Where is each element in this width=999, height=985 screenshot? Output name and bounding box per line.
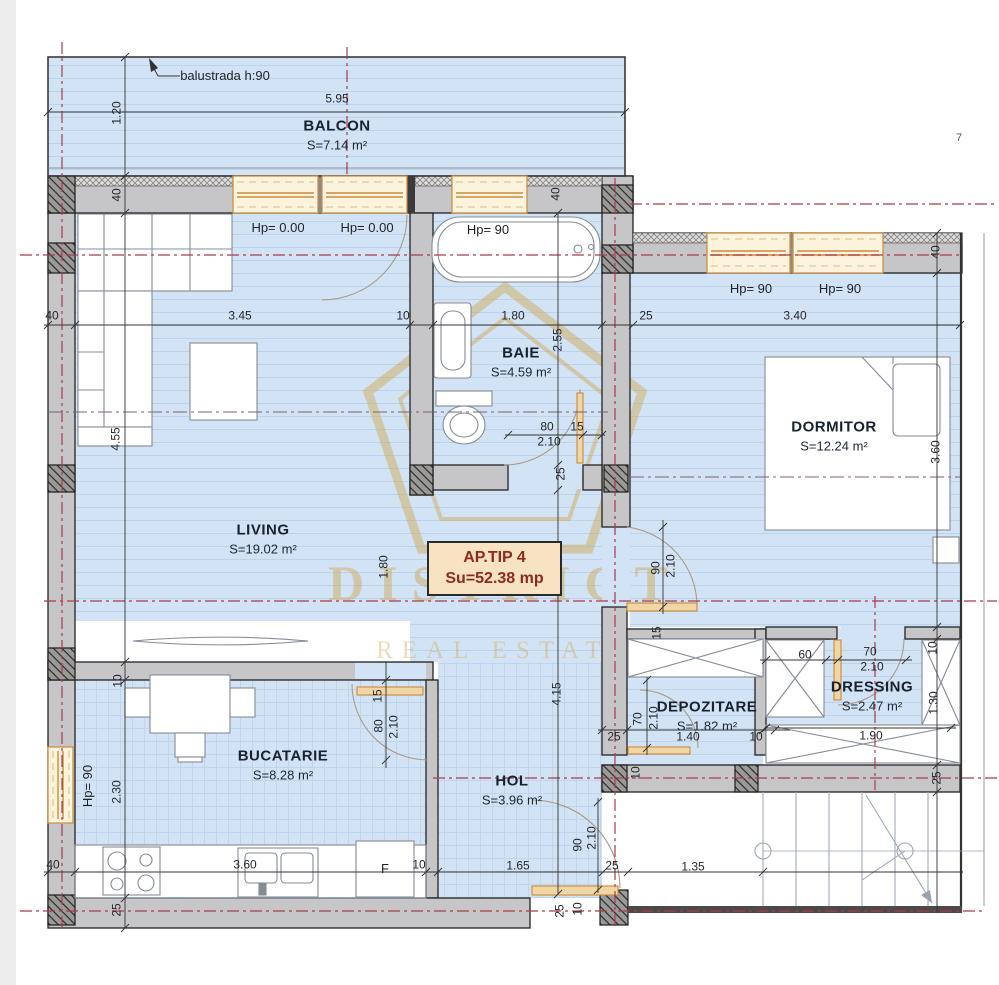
dimension-label: 2.55 [552, 328, 565, 351]
room-area: S=12.24 m² [791, 439, 876, 454]
dimension-label: 2.10 [537, 436, 560, 449]
dimension-label: 2.10 [665, 554, 678, 577]
annotation-label: Hp= 90 [819, 282, 861, 296]
annotation-label: Hp= 90 [81, 765, 95, 807]
room-area: S=19.02 m² [229, 542, 297, 557]
room-area: S=3.96 m² [482, 793, 542, 808]
dimension-label: 25 [607, 731, 620, 744]
annotation-label: Hp= 90 [467, 223, 509, 237]
floor-plan: DISTRICT REAL ESTATE [0, 0, 999, 985]
annotation-label: Hp= 0.00 [340, 221, 393, 235]
dimension-label: 1.90 [859, 730, 882, 743]
room-label-hol: HOLS=3.96 m² [482, 773, 542, 808]
room-label-bucatarie: BUCATARIES=8.28 m² [238, 748, 329, 783]
dimension-label: 1.80 [378, 555, 391, 578]
dimension-label: 25 [111, 903, 124, 916]
dimension-label: 40 [930, 245, 943, 258]
dimension-label: 2.10 [586, 826, 599, 849]
room-area: S=7.14 m² [303, 138, 370, 153]
dimension-label: 10 [572, 902, 585, 915]
dimension-label: 40 [550, 187, 563, 200]
dimension-label: 10 [112, 674, 125, 687]
dimension-label: 80 [373, 719, 386, 732]
dimension-label: 25 [639, 310, 652, 323]
room-label-dormitor: DORMITORS=12.24 m² [791, 419, 876, 454]
room-name: BAIE [491, 345, 551, 362]
apartment-info-box: AP.TIP 4 Su=52.38 mp [427, 541, 562, 596]
room-label-dressing: DRESSINGS=2.47 m² [831, 679, 913, 714]
dimension-label: 40 [111, 188, 124, 201]
dimension-label: 10 [412, 859, 425, 872]
dimension-label: 10 [927, 641, 940, 654]
dimension-label: 80 [540, 421, 553, 434]
dimension-label: 4.15 [551, 682, 564, 705]
room-area: S=8.28 m² [238, 768, 329, 783]
room-label-baie: BAIES=4.59 m² [491, 345, 551, 380]
apartment-type: AP.TIP 4 [463, 548, 526, 569]
dimension-label: 15 [651, 626, 664, 639]
apartment-area: Su=52.38 mp [445, 569, 543, 590]
room-area: S=1.82 m² [657, 719, 758, 734]
dimension-label: 2.10 [860, 661, 883, 674]
dimension-label: 70 [863, 646, 876, 659]
dimension-label: 10 [630, 766, 643, 779]
room-name: HOL [482, 773, 542, 790]
dimension-label: 40 [46, 859, 59, 872]
dimension-label: 15 [372, 689, 385, 702]
dimension-label: 1.80 [501, 310, 524, 323]
dimension-label: 3.40 [783, 310, 806, 323]
dimension-label: 5.95 [325, 93, 348, 106]
dimension-label: 90 [650, 561, 663, 574]
annotation-label: balustrada h:90 [180, 69, 270, 83]
page-edge [0, 0, 16, 985]
dimension-label: 1.30 [928, 691, 941, 714]
annotation-label: F [381, 862, 389, 876]
right-boundary [961, 233, 984, 913]
dimension-label: 3.60 [233, 859, 256, 872]
room-label-living: LIVINGS=19.02 m² [229, 522, 297, 557]
dimension-label: 25 [605, 860, 618, 873]
dimension-label: 1.20 [111, 101, 124, 124]
dimension-label: 15 [570, 421, 583, 434]
stairs-arrow [921, 890, 932, 903]
dimension-label: 3.45 [228, 310, 251, 323]
dimension-label: 90 [572, 838, 585, 851]
dimension-label: 1.35 [681, 861, 704, 874]
dimension-label: 60 [798, 649, 811, 662]
room-name: DRESSING [831, 679, 913, 696]
room-name: LIVING [229, 522, 297, 539]
annotation-label: Hp= 0.00 [251, 221, 304, 235]
stairs [755, 792, 984, 906]
dimension-label: 25 [555, 467, 568, 480]
floor-plan-drawing: DISTRICT REAL ESTATE [0, 0, 999, 985]
dimension-label: 25 [554, 904, 567, 917]
watermark-line2: REAL ESTATE [376, 637, 634, 664]
dimension-label: 1.65 [506, 860, 529, 873]
window-mullion [318, 176, 322, 213]
dimension-label: 25 [931, 771, 944, 784]
room-label-balcon: BALCONS=7.14 m² [303, 118, 370, 153]
dimension-label: 10 [396, 310, 409, 323]
room-label-depozitare: DEPOZITARES=1.82 m² [657, 699, 758, 734]
room-name: DORMITOR [791, 419, 876, 436]
room-name: DEPOZITARE [657, 699, 758, 716]
stair-edge-band [628, 906, 962, 913]
stray-mark: 7 [956, 133, 962, 145]
room-area: S=4.59 m² [491, 365, 551, 380]
dimension-label: 3.60 [930, 440, 943, 463]
dimension-label: 2.30 [111, 780, 124, 803]
dimension-label: 40 [45, 310, 58, 323]
room-area: S=2.47 m² [831, 699, 913, 714]
window-jamb [407, 176, 415, 213]
annotation-label: Hp= 90 [730, 282, 772, 296]
dimension-label: 4.55 [110, 427, 123, 450]
room-name: BUCATARIE [238, 748, 329, 765]
room-name: BALCON [303, 118, 370, 135]
dimension-label: 2.10 [388, 715, 401, 738]
dimension-label: 70 [632, 712, 645, 725]
